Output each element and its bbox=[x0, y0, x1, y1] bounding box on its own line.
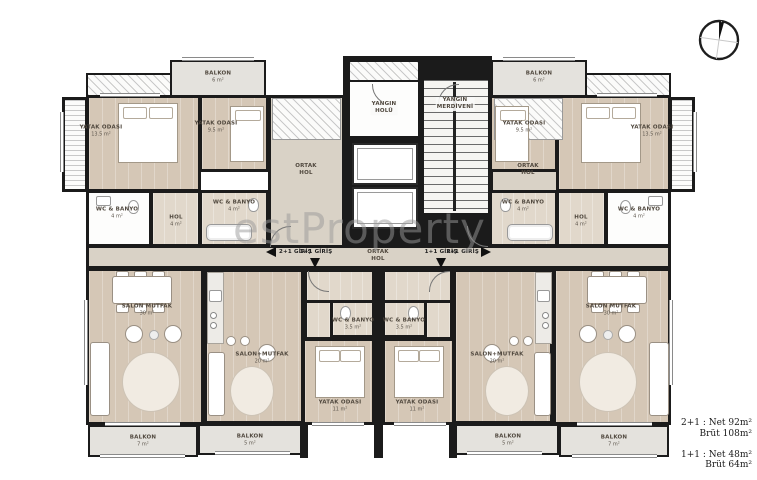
label-balkon-bottom-left: BALKON7 m² bbox=[130, 435, 156, 448]
label-balkon-top-left: BALKON6 m² bbox=[205, 71, 231, 84]
label-salon-1-1-right: SALON+MUTFAK20 m² bbox=[470, 352, 523, 365]
label-fire-hall: YANGINHOLÜ bbox=[371, 101, 398, 115]
label-bedroom-1-1-right: YATAK ODASI11 m² bbox=[396, 400, 439, 413]
entrance-arrow-right-icon bbox=[481, 247, 491, 257]
label-balkon-top-right: BALKON6 m² bbox=[526, 71, 552, 84]
legend-1-1-brut: Brüt 64m² bbox=[652, 460, 752, 471]
stool bbox=[240, 336, 250, 346]
mini-hall-right bbox=[424, 300, 453, 340]
side-table bbox=[149, 330, 159, 340]
label-wc-b-left: WC & BANYO4 m² bbox=[213, 200, 255, 213]
double-bed bbox=[394, 346, 444, 398]
north-arrow-icon bbox=[695, 16, 743, 68]
sink bbox=[96, 196, 111, 206]
window bbox=[503, 57, 575, 61]
single-bed bbox=[495, 106, 529, 162]
single-bed bbox=[230, 106, 264, 162]
side-table bbox=[603, 330, 613, 340]
label-hol-left: HOL4 m² bbox=[169, 215, 182, 228]
label-salon-right: SALON MUTFAK30 m² bbox=[586, 304, 636, 317]
armchair bbox=[579, 325, 597, 343]
window bbox=[182, 57, 254, 61]
dining-table bbox=[112, 276, 172, 304]
armchair bbox=[125, 325, 143, 343]
window bbox=[312, 422, 364, 426]
dining-table bbox=[587, 276, 647, 304]
window bbox=[100, 454, 185, 458]
window bbox=[84, 300, 88, 385]
window bbox=[572, 454, 657, 458]
armchair bbox=[618, 325, 636, 343]
void-left bbox=[272, 98, 341, 140]
label-balkon-1-1-right: BALKON5 m² bbox=[495, 434, 521, 447]
label-bedroom2-left: YATAK ODASI9.5 m² bbox=[195, 121, 238, 134]
wall-stub bbox=[449, 422, 457, 458]
rug bbox=[230, 366, 274, 416]
label-bedroom-1-1-left: YATAK ODASI11 m² bbox=[319, 400, 362, 413]
entrance-arrow-down-icon bbox=[436, 258, 446, 268]
mini-hall-left bbox=[304, 300, 333, 340]
stove-burner bbox=[542, 322, 549, 329]
legend-2-1-net: 2+1 : Net 92m² bbox=[652, 418, 752, 429]
elevator-2 bbox=[352, 187, 418, 229]
label-wc-1-1-left: WC & BANYO3.5 m² bbox=[332, 318, 374, 331]
window bbox=[693, 112, 697, 172]
label-ortak-hol-right: ORTAKHOL bbox=[517, 163, 539, 177]
kitchen-counter bbox=[207, 272, 224, 344]
window bbox=[394, 422, 446, 426]
double-bed bbox=[315, 346, 365, 398]
window bbox=[597, 93, 657, 97]
label-wc-a-right: WC & BANYO4 m² bbox=[618, 207, 660, 220]
stove-burner bbox=[542, 312, 549, 319]
entrance-2-1-right: 2+1 GİRİŞ bbox=[441, 249, 479, 256]
sink bbox=[648, 196, 663, 206]
sofa bbox=[208, 352, 225, 416]
label-balkon-1-1-left: BALKON5 m² bbox=[237, 434, 263, 447]
label-wc-b-right: WC & BANYO4 m² bbox=[502, 200, 544, 213]
rug bbox=[579, 352, 637, 412]
stool bbox=[509, 336, 519, 346]
entrance-1-1-left: 1+1 GİRİŞ bbox=[298, 249, 334, 256]
sofa bbox=[90, 342, 110, 416]
label-bedroom1-right: YATAK ODASI13.5 m² bbox=[631, 125, 674, 138]
label-bedroom2-right: YATAK ODASI9.5 m² bbox=[503, 121, 546, 134]
rug bbox=[122, 352, 180, 412]
elevator-1 bbox=[352, 143, 418, 185]
floor-plan: YATAK ODASI13.5 m² YATAK ODASI9.5 m² WC … bbox=[0, 0, 757, 480]
area-legend: 2+1 : Net 92m² Brüt 108m² 1+1 : Net 48m²… bbox=[652, 418, 752, 471]
sofa bbox=[534, 352, 551, 416]
stool bbox=[226, 336, 236, 346]
double-bed bbox=[118, 103, 178, 163]
stove-burner bbox=[210, 322, 217, 329]
kitchen-sink bbox=[537, 290, 550, 302]
entrance-arrow-left-icon bbox=[266, 247, 276, 257]
window bbox=[60, 112, 64, 172]
wall-stub bbox=[300, 422, 308, 458]
kitchen-sink bbox=[209, 290, 222, 302]
stove-burner bbox=[210, 312, 217, 319]
closet-strip-right bbox=[669, 97, 695, 192]
legend-1-1-net: 1+1 : Net 48m² bbox=[652, 450, 752, 461]
label-salon-left: SALON MUTFAK30 m² bbox=[122, 304, 172, 317]
label-hol-right: HOL4 m² bbox=[574, 215, 587, 228]
closet-strip-left bbox=[62, 97, 88, 192]
legend-2-1-brut: Brüt 108m² bbox=[652, 429, 752, 440]
label-fire-stair: YANGINMERDİVENİ bbox=[436, 97, 475, 111]
kitchen-counter bbox=[535, 272, 552, 344]
label-wc-1-1-right: WC & BANYO3.5 m² bbox=[383, 318, 425, 331]
bathtub bbox=[507, 224, 553, 241]
window bbox=[105, 422, 180, 426]
sofa bbox=[649, 342, 669, 416]
rug bbox=[485, 366, 529, 416]
label-bedroom1-left: YATAK ODASI13.5 m² bbox=[80, 125, 123, 138]
stool bbox=[523, 336, 533, 346]
center-wall bbox=[374, 269, 383, 458]
window bbox=[577, 422, 652, 426]
armchair bbox=[164, 325, 182, 343]
window bbox=[215, 451, 290, 455]
shaft-void bbox=[348, 60, 420, 82]
label-balkon-bottom-right: BALKON7 m² bbox=[601, 435, 627, 448]
window bbox=[100, 93, 160, 97]
label-ortak-hol-left: ORTAKHOL bbox=[295, 163, 317, 177]
window bbox=[467, 451, 542, 455]
entrance-arrow-down-icon bbox=[310, 258, 320, 268]
label-salon-1-1-left: SALON+MUTFAK20 m² bbox=[235, 352, 288, 365]
label-ortak-hol-center: ORTAKHOL bbox=[367, 249, 389, 263]
window bbox=[669, 300, 673, 385]
label-wc-a-left: WC & BANYO4 m² bbox=[96, 207, 138, 220]
bathtub bbox=[206, 224, 252, 241]
